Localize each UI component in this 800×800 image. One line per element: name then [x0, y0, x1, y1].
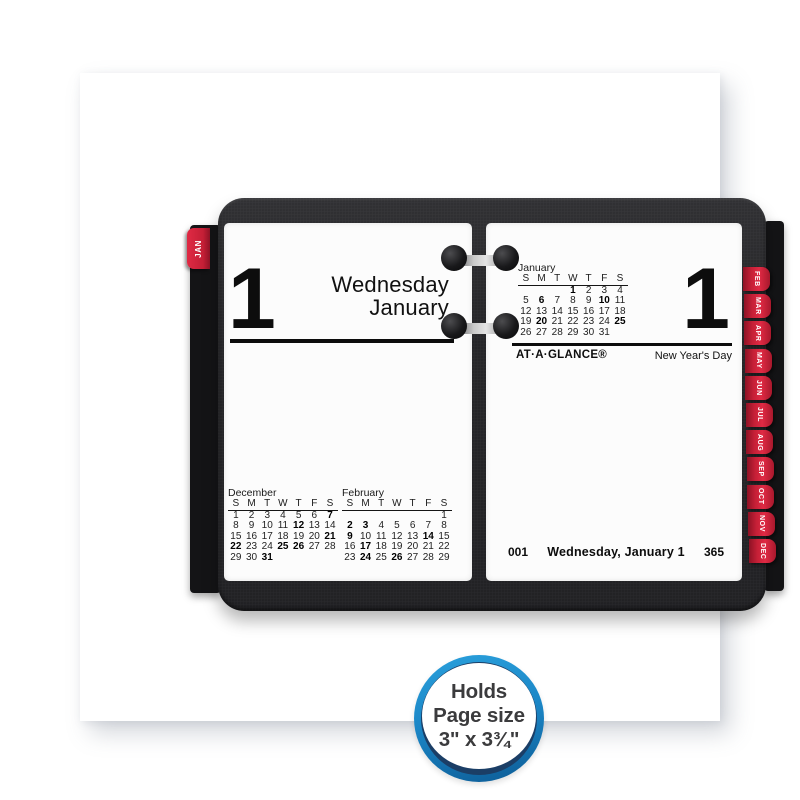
badge-text: Holds Page size 3" x 3¾" — [422, 663, 536, 769]
mini-cal-header: T — [581, 274, 597, 285]
mini-cal-header: T — [373, 499, 389, 510]
mini-cal-week-row: 293031 — [228, 553, 338, 564]
binder-ring-top-left — [441, 245, 467, 271]
tab-label: APR — [754, 325, 761, 342]
mini-cal-header: F — [420, 499, 436, 510]
mini-cal-header: S — [322, 499, 338, 510]
mini-cal-header: T — [549, 274, 565, 285]
mini-cal-header: T — [405, 499, 421, 510]
mini-cal-date: 26 — [518, 328, 534, 339]
tab-dec: DEC — [749, 539, 776, 563]
badge-line-1: Holds — [451, 680, 507, 704]
tab-mar: MAR — [744, 294, 771, 318]
mini-cal-date: 27 — [306, 542, 322, 553]
tab-label: NOV — [758, 515, 765, 532]
product-photo-card: JAN FEBMARAPRMAYJUNJULAUGSEPOCTNOVDEC 1 … — [80, 73, 720, 721]
binder-ring-bottom-right — [493, 313, 519, 339]
mini-cal-week-row: 23242526272829 — [342, 553, 452, 564]
tab-label: DEC — [759, 543, 766, 560]
tab-jan-label: JAN — [194, 240, 203, 258]
mini-cal-date: 27 — [534, 328, 550, 339]
mini-cal-week-row: 262728293031 — [518, 328, 628, 339]
mini-cal-header: T — [291, 499, 307, 510]
mini-cal-date: 28 — [420, 553, 436, 564]
mini-cal-header: S — [612, 274, 628, 285]
mini-cal-date: 25 — [373, 553, 389, 564]
mini-cal-date: 25 — [275, 542, 291, 553]
holder-back-strip-left — [190, 225, 221, 593]
mini-cal-header: S — [342, 499, 358, 510]
binder-ring-bottom-left — [441, 313, 467, 339]
day-of-year: 001 — [508, 545, 528, 559]
mini-cal-date — [291, 553, 307, 564]
mini-cal-date: 23 — [342, 553, 358, 564]
tab-label: JUL — [756, 407, 763, 422]
mini-cal-title: December — [228, 488, 338, 498]
mini-calendar-january: JanuarySMTWTFS12345678910111213141516171… — [518, 263, 628, 339]
badge-line-3: 3" x 3¾" — [439, 728, 520, 752]
tab-label: MAR — [754, 297, 761, 315]
tab-sep: SEP — [747, 457, 774, 481]
mini-cal-date: 26 — [389, 553, 405, 564]
mini-cal-header: W — [389, 499, 405, 510]
calendar-page-right: JanuarySMTWTFS12345678910111213141516171… — [486, 223, 742, 581]
tab-aug: AUG — [746, 430, 773, 454]
mini-cal-date: 31 — [596, 328, 612, 339]
mini-cal-title: February — [342, 488, 452, 498]
tab-feb: FEB — [743, 267, 770, 291]
page-footer: 001 Wednesday, January 1 365 — [508, 545, 724, 559]
tab-label: OCT — [757, 488, 764, 505]
mini-cal-date: 29 — [565, 328, 581, 339]
days-remaining: 365 — [704, 545, 724, 559]
mini-cal-date — [306, 553, 322, 564]
mini-calendar-february: FebruarySMTWTFS1234567891011121314151617… — [342, 488, 452, 564]
tab-label: AUG — [756, 434, 763, 451]
tab-apr: APR — [744, 321, 771, 345]
mini-cal-header: S — [436, 499, 452, 510]
mini-cal-date: 29 — [228, 553, 244, 564]
mini-cal-date: 29 — [436, 553, 452, 564]
mini-cal-header: F — [306, 499, 322, 510]
mini-cal-date: 30 — [581, 328, 597, 339]
mini-cal-header: S — [228, 499, 244, 510]
mini-cal-date: 30 — [244, 553, 260, 564]
mini-cal-date — [275, 553, 291, 564]
mini-cal-header-row: SMTWTFS — [518, 274, 628, 286]
mini-cal-header: M — [244, 499, 260, 510]
mini-cal-date: 28 — [322, 542, 338, 553]
tab-jul: JUL — [746, 403, 773, 427]
mini-cal-date: 24 — [358, 553, 374, 564]
footer-date: Wednesday, January 1 — [528, 545, 704, 559]
mini-cal-week-row: 22232425262728 — [228, 542, 338, 553]
mini-cal-header: W — [275, 499, 291, 510]
brand-logo: AT·A·GLANCE® — [516, 349, 607, 361]
holiday-label: New Year's Day — [655, 350, 732, 362]
mini-cal-date: 25 — [612, 317, 628, 328]
right-day-number: 1 — [682, 267, 728, 331]
mini-cal-header: S — [518, 274, 534, 285]
mini-cal-date: 27 — [405, 553, 421, 564]
mini-cal-header: T — [259, 499, 275, 510]
weekday-label: Wednesday — [331, 273, 449, 296]
tab-label: FEB — [753, 271, 760, 287]
left-page-rule — [230, 339, 454, 343]
calendar-page-left: 1 Wednesday January DecemberSMTWTFS12345… — [224, 223, 472, 581]
mini-cal-header: M — [534, 274, 550, 285]
mini-cal-date — [322, 553, 338, 564]
mini-cal-date: 31 — [259, 553, 275, 564]
mini-cal-date: 26 — [291, 542, 307, 553]
tab-oct: OCT — [747, 485, 774, 509]
left-day-month: Wednesday January — [331, 273, 449, 319]
right-page-rule — [512, 343, 732, 346]
tab-jan: JAN — [187, 228, 210, 269]
mini-cal-header-row: SMTWTFS — [228, 499, 338, 511]
mini-cal-header: M — [358, 499, 374, 510]
mini-cal-header: F — [596, 274, 612, 285]
mini-cal-header: W — [565, 274, 581, 285]
mini-cal-header-row: SMTWTFS — [342, 499, 452, 511]
tab-label: MAY — [755, 352, 762, 369]
mini-cal-date: 28 — [549, 328, 565, 339]
tab-jun: JUN — [745, 376, 772, 400]
page-size-badge: Holds Page size 3" x 3¾" — [414, 655, 544, 782]
badge-line-2: Page size — [433, 704, 525, 728]
left-day-number: 1 — [228, 267, 274, 331]
tab-label: JUN — [755, 380, 762, 396]
mini-calendar-december: DecemberSMTWTFS1234567891011121314151617… — [228, 488, 338, 564]
month-label: January — [331, 296, 449, 319]
tab-nov: NOV — [748, 512, 775, 536]
tab-label: SEP — [757, 461, 764, 477]
tab-may: MAY — [745, 349, 772, 373]
mini-cal-date — [612, 328, 628, 339]
binder-ring-top-right — [493, 245, 519, 271]
mini-cal-title: January — [518, 263, 628, 273]
